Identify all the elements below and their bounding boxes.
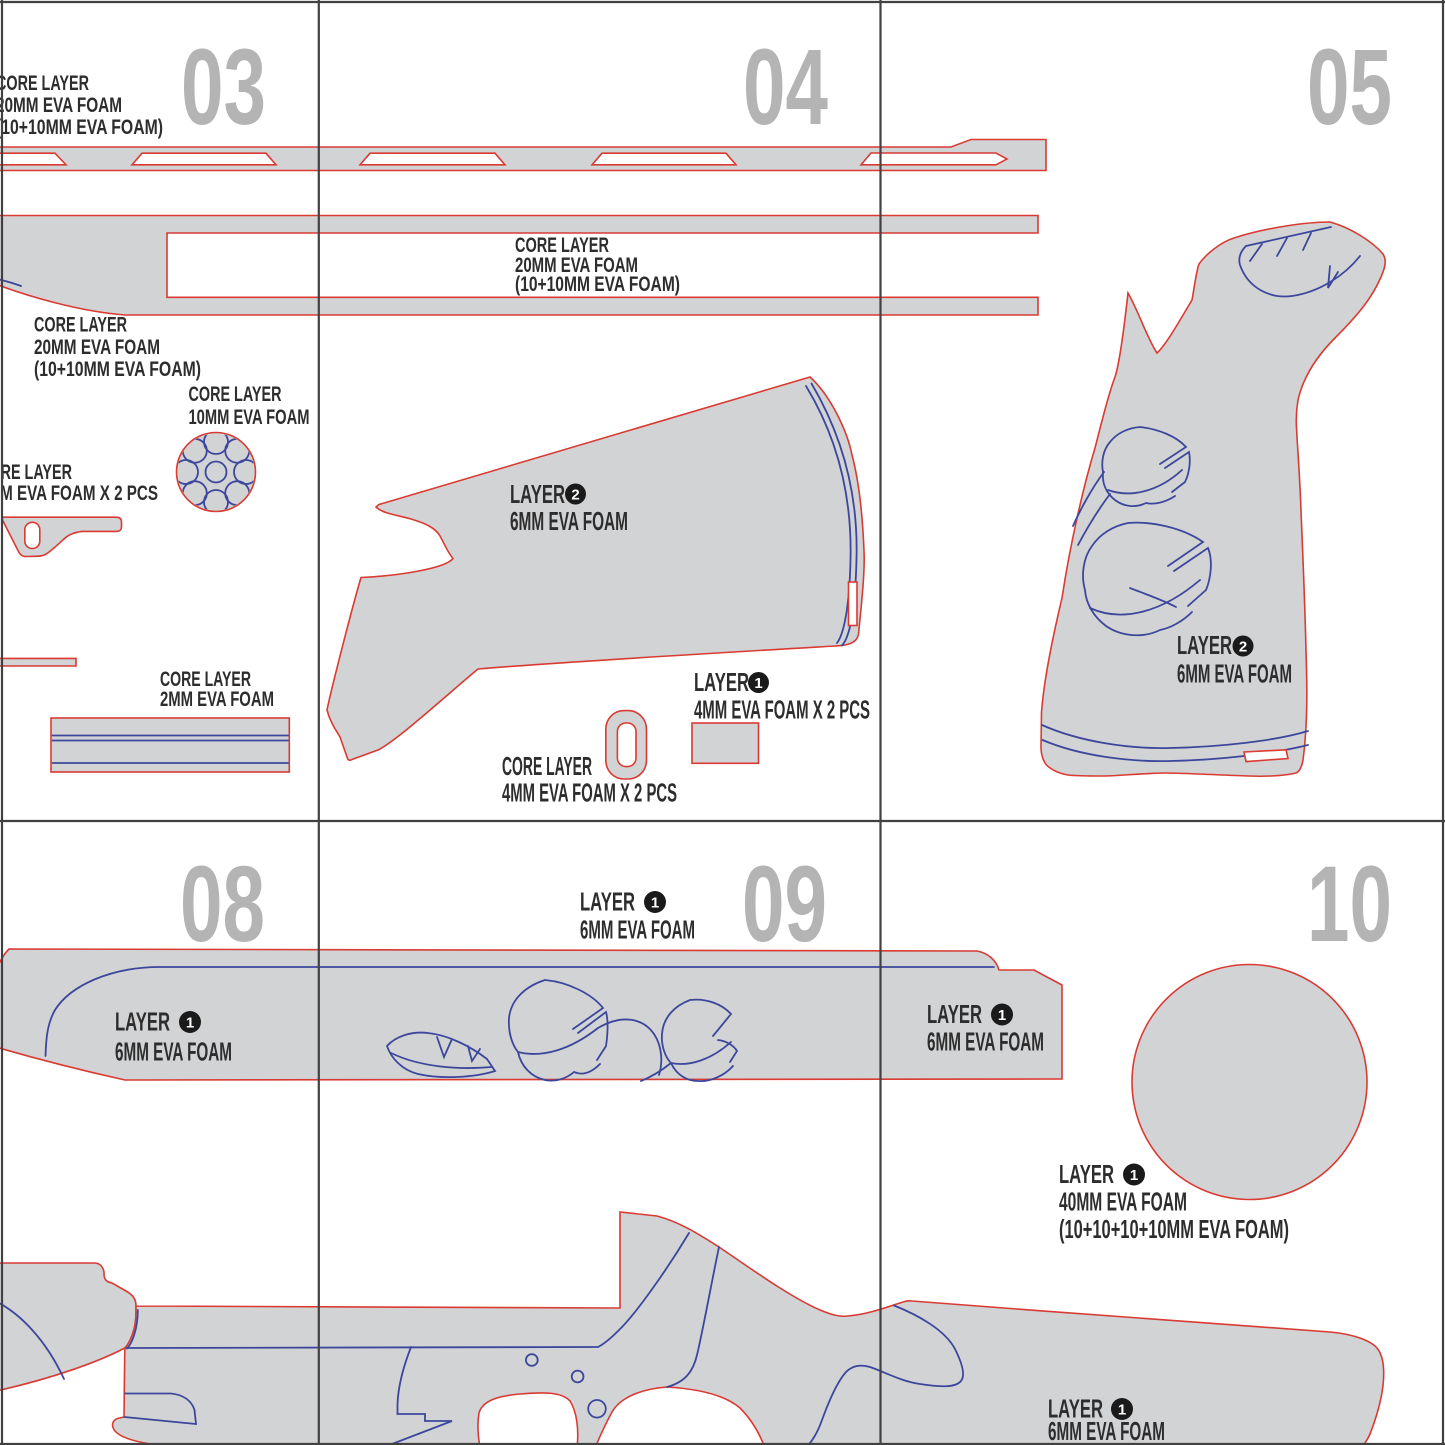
svg-text:20MM EVA FOAM: 20MM EVA FOAM (0, 94, 122, 117)
svg-text:1: 1 (1130, 1167, 1138, 1184)
svg-text:4MM EVA FOAM X 2 PCS: 4MM EVA FOAM X 2 PCS (0, 482, 158, 505)
svg-text:40MM EVA FOAM: 40MM EVA FOAM (1059, 1189, 1187, 1217)
svg-text:6MM EVA FOAM: 6MM EVA FOAM (580, 917, 695, 945)
svg-text:04: 04 (743, 26, 828, 147)
svg-text:1: 1 (754, 675, 762, 692)
svg-text:(10+10MM EVA FOAM): (10+10MM EVA FOAM) (34, 358, 201, 381)
svg-text:05: 05 (1307, 26, 1392, 147)
svg-text:CORE LAYER: CORE LAYER (0, 72, 89, 95)
svg-text:CORE LAYER: CORE LAYER (34, 314, 127, 337)
svg-text:6MM EVA FOAM: 6MM EVA FOAM (927, 1029, 1044, 1057)
svg-text:2MM EVA FOAM: 2MM EVA FOAM (160, 688, 274, 711)
svg-text:LAYER: LAYER (510, 481, 565, 509)
svg-text:10: 10 (1307, 843, 1392, 964)
svg-text:LAYER: LAYER (115, 1009, 170, 1037)
svg-text:20MM EVA FOAM: 20MM EVA FOAM (34, 336, 160, 359)
svg-text:LAYER: LAYER (1177, 632, 1232, 660)
svg-text:CORE LAYER: CORE LAYER (0, 461, 72, 484)
svg-text:1: 1 (998, 1007, 1006, 1024)
svg-text:(10+10MM EVA FOAM): (10+10MM EVA FOAM) (0, 116, 163, 139)
svg-text:CORE LAYER: CORE LAYER (502, 753, 592, 781)
svg-text:LAYER: LAYER (1059, 1161, 1114, 1189)
svg-text:(10+10+10+10MM EVA FOAM): (10+10+10+10MM EVA FOAM) (1059, 1216, 1289, 1244)
svg-text:6MM EVA FOAM: 6MM EVA FOAM (510, 508, 628, 536)
svg-text:LAYER: LAYER (927, 1001, 982, 1029)
svg-text:10MM EVA FOAM: 10MM EVA FOAM (189, 406, 310, 429)
svg-text:4MM EVA FOAM X 2 PCS: 4MM EVA FOAM X 2 PCS (502, 780, 677, 808)
svg-text:1: 1 (651, 895, 659, 912)
svg-text:(10+10MM EVA FOAM): (10+10MM EVA FOAM) (515, 273, 680, 296)
svg-text:4MM EVA FOAM X 2 PCS: 4MM EVA FOAM X 2 PCS (694, 697, 870, 725)
svg-text:2: 2 (1239, 639, 1247, 656)
svg-text:CORE LAYER: CORE LAYER (189, 383, 282, 406)
svg-text:6MM EVA FOAM: 6MM EVA FOAM (115, 1039, 232, 1067)
svg-text:03: 03 (181, 26, 266, 147)
svg-text:1: 1 (1118, 1402, 1126, 1419)
svg-text:6MM EVA FOAM: 6MM EVA FOAM (1048, 1418, 1165, 1445)
svg-text:LAYER: LAYER (694, 669, 749, 697)
svg-text:09: 09 (742, 843, 827, 964)
svg-text:6MM EVA FOAM: 6MM EVA FOAM (1177, 661, 1292, 689)
svg-text:LAYER: LAYER (580, 889, 635, 917)
svg-text:08: 08 (180, 843, 265, 964)
svg-text:2: 2 (571, 487, 579, 504)
svg-text:1: 1 (186, 1015, 194, 1032)
